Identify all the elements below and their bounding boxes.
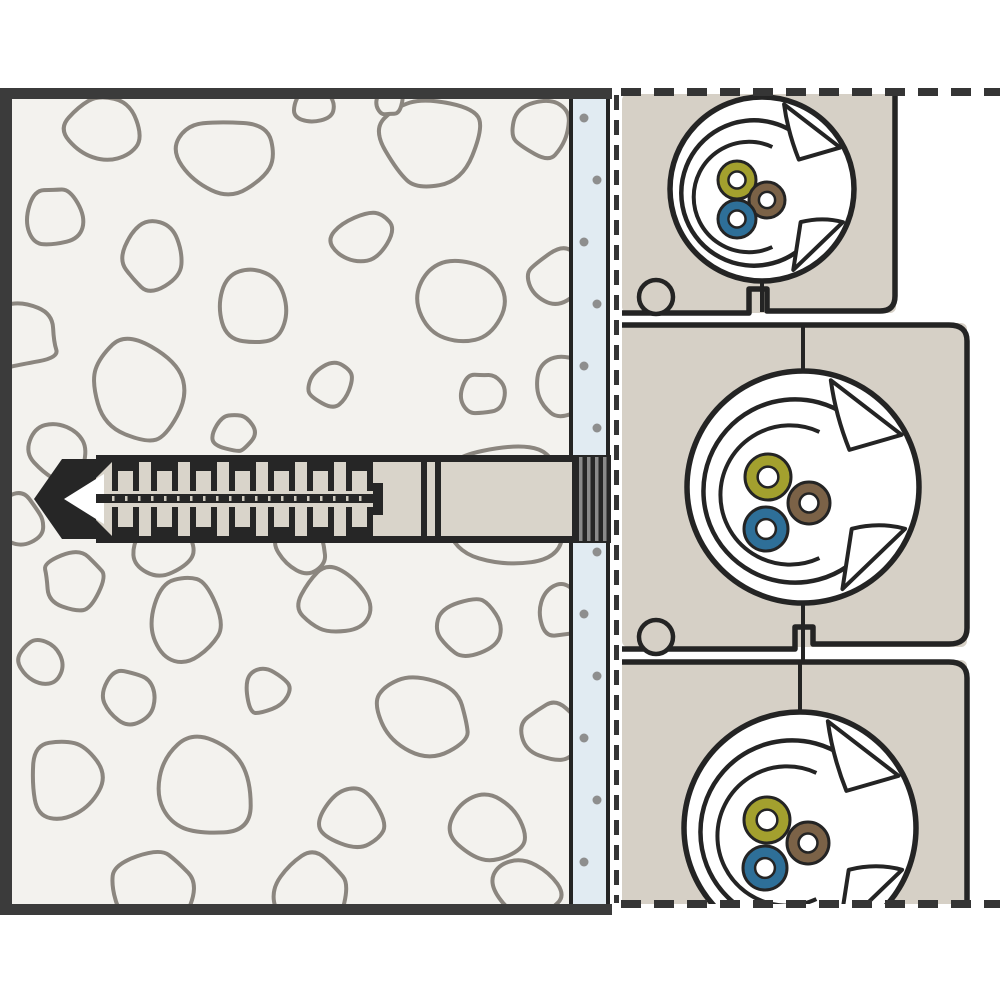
plaster-dot <box>580 734 589 743</box>
thread-tick <box>164 496 167 501</box>
collar-stripe <box>579 457 583 541</box>
screw-tip-bar <box>373 483 383 515</box>
thread-tick <box>242 496 245 501</box>
plaster-dot <box>580 610 589 619</box>
wire-core <box>757 810 778 831</box>
tooth <box>346 462 352 491</box>
wall-border-left <box>0 88 12 915</box>
neutral-wire-cross-section <box>744 507 788 551</box>
wire-core <box>758 467 779 488</box>
plaster-dot <box>580 362 589 371</box>
collar-stripe <box>595 457 599 541</box>
wire-core <box>799 834 818 853</box>
tooth <box>211 507 217 536</box>
socket-insert <box>684 712 916 944</box>
installation-diagram <box>0 0 1000 1000</box>
wire-core <box>728 171 745 188</box>
stone <box>27 189 83 244</box>
thread-tick <box>190 496 193 501</box>
tooth <box>289 462 295 491</box>
thread-tick <box>333 496 336 501</box>
plaster-dot <box>593 548 602 557</box>
plaster-dot <box>580 858 589 867</box>
thread-tick <box>125 496 128 501</box>
collar-stripe <box>603 457 607 541</box>
knockout-hole <box>639 620 673 654</box>
sleeve-divider <box>435 455 441 543</box>
tooth <box>190 462 196 491</box>
neutral-wire-cross-section <box>718 200 756 238</box>
wire-core <box>759 192 775 208</box>
wall-border-top <box>0 88 612 99</box>
thread-tick <box>112 496 115 501</box>
neutral-wire-cross-section <box>743 846 787 890</box>
stone <box>220 270 286 342</box>
anchor-outline-bottom <box>96 536 611 543</box>
stone <box>212 415 255 451</box>
thread-tick <box>359 496 362 501</box>
tooth <box>307 462 313 491</box>
thread-tick <box>138 496 141 501</box>
tooth <box>172 507 178 536</box>
thread-tick <box>177 496 180 501</box>
wire-core <box>728 210 745 227</box>
wire-core <box>755 858 775 878</box>
plaster-dot <box>593 300 602 309</box>
tooth <box>151 507 157 536</box>
thread-tick <box>281 496 284 501</box>
tooth <box>328 507 334 536</box>
expansion-anchor-fixing <box>34 455 611 543</box>
top-box <box>622 92 896 314</box>
wall-border-bottom <box>0 904 612 915</box>
thread-tick <box>346 496 349 501</box>
thread-tick <box>203 496 206 501</box>
wire-core <box>756 519 776 539</box>
thread-tick <box>268 496 271 501</box>
plaster-dot <box>593 796 602 805</box>
middle-box <box>622 323 967 660</box>
tooth <box>307 507 313 536</box>
tooth <box>172 462 178 491</box>
tooth <box>112 507 118 536</box>
thread-tick <box>255 496 258 501</box>
tooth <box>250 462 256 491</box>
plaster-dot <box>580 114 589 123</box>
tooth <box>367 507 373 536</box>
thread-tick <box>307 496 310 501</box>
tooth <box>112 462 118 491</box>
thread-tick <box>216 496 219 501</box>
tooth <box>151 462 157 491</box>
live-wire-cross-section <box>788 482 830 524</box>
stone <box>437 599 501 656</box>
plaster-dot <box>593 424 602 433</box>
tooth <box>190 507 196 536</box>
stone <box>45 552 104 610</box>
plaster-dot <box>593 176 602 185</box>
earth-wire-cross-section <box>745 454 791 500</box>
thread-tick <box>294 496 297 501</box>
thread-tick <box>229 496 232 501</box>
anchor-outline-top <box>96 455 611 462</box>
knockout-hole <box>639 280 673 314</box>
tooth <box>229 462 235 491</box>
tooth <box>250 507 256 536</box>
tooth <box>229 507 235 536</box>
flush-mount-socket-boxes <box>622 92 967 944</box>
stone <box>112 852 194 929</box>
tooth <box>289 507 295 536</box>
socket-insert <box>687 371 919 603</box>
tooth <box>328 462 334 491</box>
collar-stripe <box>587 457 591 541</box>
tooth <box>133 507 139 536</box>
thread-tick <box>151 496 154 501</box>
plaster-dot <box>593 672 602 681</box>
tooth <box>367 462 373 491</box>
thread-tick <box>320 496 323 501</box>
stone <box>461 375 505 413</box>
plaster-dot <box>580 238 589 247</box>
diagram-canvas <box>0 0 1000 1000</box>
tooth <box>268 507 274 536</box>
tooth <box>133 462 139 491</box>
tooth <box>211 462 217 491</box>
live-wire-cross-section <box>787 822 829 864</box>
wire-core <box>800 494 819 513</box>
tooth <box>268 462 274 491</box>
sleeve-divider <box>421 455 427 543</box>
earth-wire-cross-section <box>744 797 790 843</box>
stone <box>417 261 505 341</box>
socket-insert <box>670 97 854 281</box>
tooth <box>346 507 352 536</box>
